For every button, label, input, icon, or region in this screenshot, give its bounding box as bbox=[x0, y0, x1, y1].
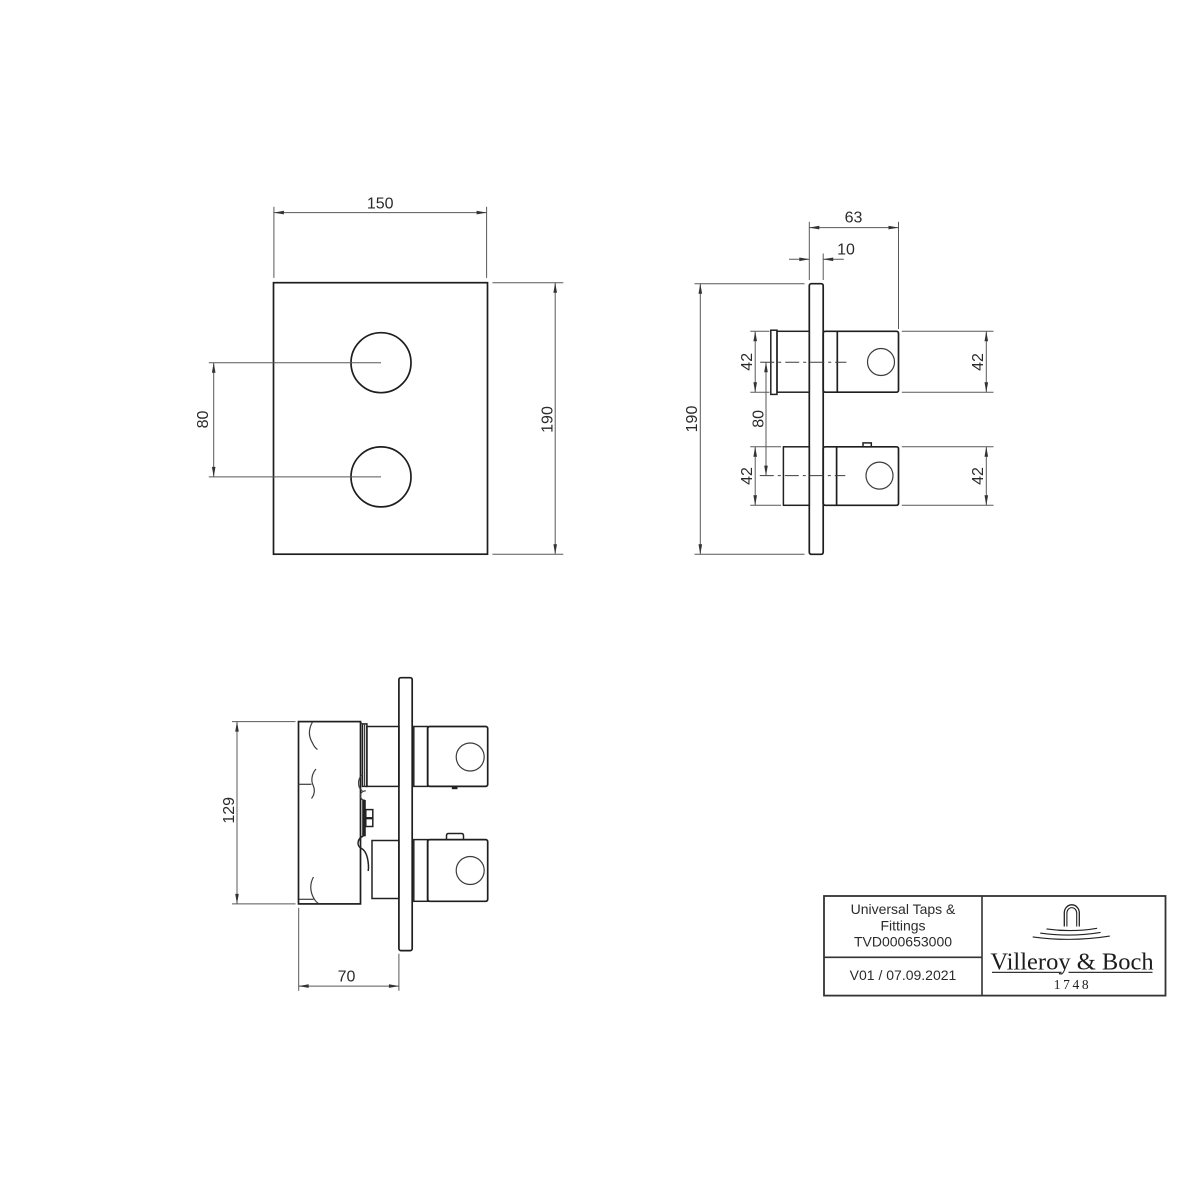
svg-text:80: 80 bbox=[195, 411, 212, 429]
svg-text:42: 42 bbox=[970, 467, 987, 485]
svg-text:129: 129 bbox=[221, 797, 238, 824]
svg-text:42: 42 bbox=[739, 353, 756, 371]
svg-text:TVD000653000: TVD000653000 bbox=[854, 934, 952, 950]
svg-text:42: 42 bbox=[739, 467, 756, 485]
svg-text:70: 70 bbox=[338, 969, 356, 986]
svg-text:63: 63 bbox=[845, 210, 863, 227]
svg-text:190: 190 bbox=[684, 406, 701, 433]
svg-text:10: 10 bbox=[837, 242, 855, 259]
svg-text:80: 80 bbox=[750, 410, 767, 428]
svg-text:1748: 1748 bbox=[1054, 977, 1091, 992]
svg-text:Villeroy & Boch: Villeroy & Boch bbox=[990, 948, 1153, 975]
svg-text:190: 190 bbox=[539, 406, 556, 433]
svg-text:42: 42 bbox=[970, 353, 987, 371]
svg-text:150: 150 bbox=[367, 196, 394, 213]
svg-text:V01 / 07.09.2021: V01 / 07.09.2021 bbox=[850, 967, 957, 983]
svg-text:Fittings: Fittings bbox=[880, 917, 925, 933]
svg-text:Universal Taps &: Universal Taps & bbox=[851, 901, 956, 917]
